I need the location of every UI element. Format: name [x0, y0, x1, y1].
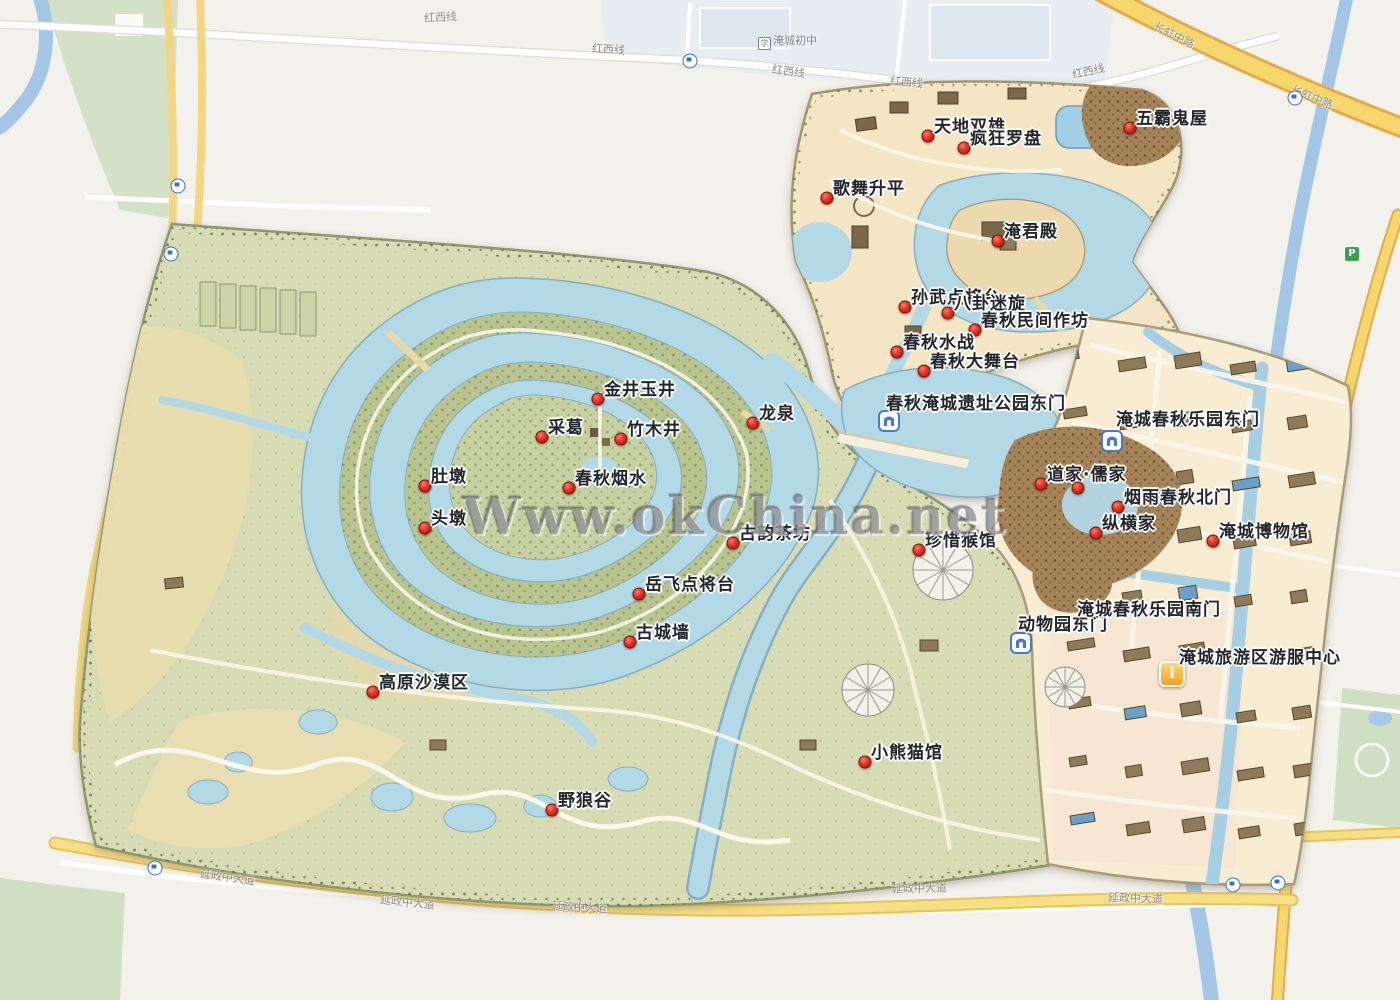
poi-label: 道家·儒家 — [1047, 467, 1126, 484]
poi-label: 肚墩 — [431, 469, 467, 486]
poi-label: 小熊猫馆 — [871, 745, 943, 762]
poi-label: 淹城博物馆 — [1219, 524, 1309, 541]
poi-label: 淹君殿 — [1004, 224, 1058, 241]
poi-dot-icon — [367, 686, 380, 699]
poi-dot-icon — [859, 756, 872, 769]
poi-dot-icon — [891, 346, 904, 359]
poi-dot-icon — [821, 192, 834, 205]
poi-dot-icon — [922, 130, 935, 143]
poi-label: 金井玉井 — [604, 382, 676, 399]
poi-label: 歌舞升平 — [833, 181, 905, 198]
gate-icon — [1010, 632, 1032, 654]
poi-dot-icon — [624, 636, 637, 649]
poi-dot-icon — [1035, 478, 1048, 491]
poi-dot-icon — [633, 588, 646, 601]
map-canvas[interactable]: 红西线红西线红西线红西线红西线延政中大道延政中大道延政中大道延政中大道延政中大道… — [0, 0, 1400, 1000]
gate-label: 春秋淹城遗址公园东门 — [886, 396, 1066, 413]
watermark: Www.okChina.net — [462, 486, 1007, 547]
poi-dot-icon — [899, 301, 912, 314]
poi-dot-icon — [1124, 122, 1137, 135]
poi-dot-icon — [536, 431, 549, 444]
poi-dot-icon — [615, 433, 628, 446]
poi-label: 竹木井 — [627, 422, 681, 439]
poi-label: 岳飞点将台 — [645, 577, 735, 594]
poi-dot-icon — [419, 480, 432, 493]
poi-dot-icon — [747, 417, 760, 430]
poi-label: 春秋大舞台 — [930, 354, 1020, 371]
poi-label: 野狼谷 — [558, 793, 612, 810]
poi-dot-icon — [958, 142, 971, 155]
poi-label: 采葛 — [548, 420, 584, 437]
poi-label: 纵横家 — [1102, 516, 1156, 533]
poi-label: 五霸鬼屋 — [1136, 111, 1208, 128]
poi-dot-icon — [546, 804, 559, 817]
poi-dot-icon — [592, 393, 605, 406]
gate-label: 淹城春秋乐园南门 — [1077, 602, 1221, 619]
poi-label: 古城墙 — [636, 625, 690, 642]
poi-dot-icon — [942, 307, 955, 320]
poi-label: 龙泉 — [759, 406, 795, 423]
poi-dot-icon — [918, 365, 931, 378]
gate-label: 淹城春秋乐园东门 — [1116, 412, 1260, 429]
gate-icon — [1101, 430, 1123, 452]
poi-dot-icon — [1112, 501, 1125, 514]
poi-label: 春秋水战 — [903, 335, 975, 352]
poi-dot-icon — [419, 522, 432, 535]
poi-dot-icon — [1207, 535, 1220, 548]
poi-dot-icon — [992, 235, 1005, 248]
poi-label: 春秋民间作坊 — [981, 313, 1089, 330]
poi-dot-icon — [1090, 527, 1103, 540]
poi-label: 烟雨春秋北门 — [1124, 490, 1232, 507]
poi-label: 疯狂罗盘 — [970, 131, 1042, 148]
poi-label: 高原沙漠区 — [379, 675, 469, 692]
info-center-label: 淹城旅游区游服中心 — [1179, 650, 1341, 667]
